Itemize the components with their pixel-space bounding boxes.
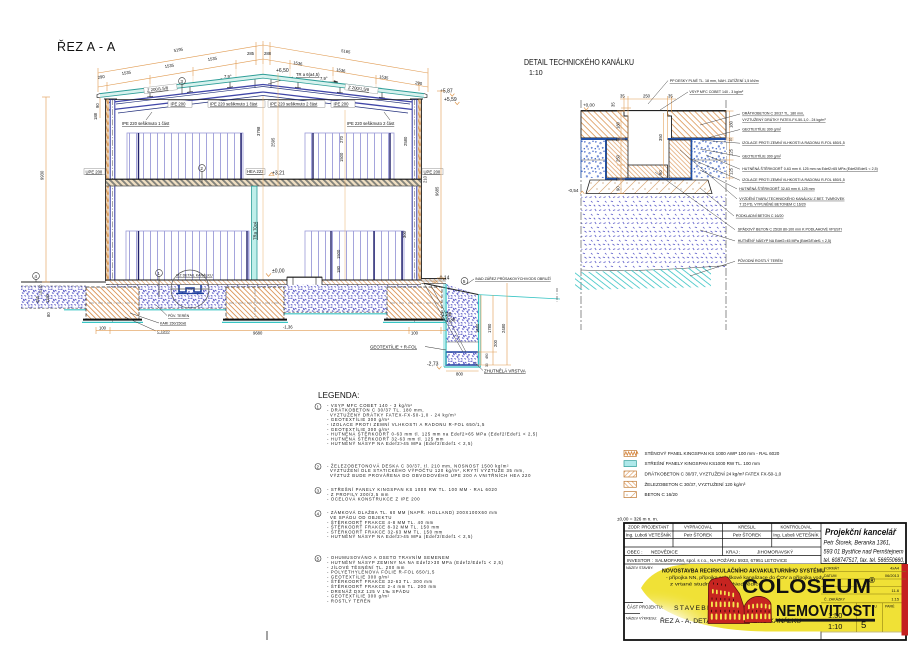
svg-text:STĚNOVÝ PANEL KINGSPAN KS 1000: STĚNOVÝ PANEL KINGSPAN KS 1000 AWP 100 m… bbox=[645, 449, 780, 456]
svg-text:HUTNĚNÁ ŠTĚRKODRŤ 32-63 mm tl.: HUTNĚNÁ ŠTĚRKODRŤ 32-63 mm tl. 125 mm bbox=[739, 186, 814, 191]
svg-text:90: 90 bbox=[95, 103, 100, 108]
svg-text:KRESLIL: KRESLIL bbox=[738, 525, 756, 530]
svg-text:ZHUTNĚLÁ VRSTVA: ZHUTNĚLÁ VRSTVA bbox=[484, 369, 526, 374]
svg-text:TRa 70x4: TRa 70x4 bbox=[253, 221, 258, 240]
svg-text:PŮV. TERÉN: PŮV. TERÉN bbox=[168, 313, 190, 318]
svg-text:INVESTOR :: INVESTOR : bbox=[627, 558, 653, 563]
svg-text:4: 4 bbox=[34, 274, 37, 279]
svg-text:188: 188 bbox=[93, 112, 98, 120]
svg-text:2595: 2595 bbox=[271, 137, 276, 147]
svg-text:Petr Štorek, Beranka 1361,: Petr Štorek, Beranka 1361, bbox=[824, 540, 891, 547]
svg-text:2580: 2580 bbox=[403, 136, 408, 146]
svg-text:IPE 200: IPE 200 bbox=[171, 102, 187, 107]
svg-text:10: 10 bbox=[616, 138, 620, 142]
svg-text:KRAJ :: KRAJ : bbox=[726, 549, 740, 554]
svg-text:VYZDĚNÍ TVARU TECHNICKÉHO KANÁ: VYZDĚNÍ TVARU TECHNICKÉHO KANÁLKU Z BET.… bbox=[739, 196, 845, 201]
svg-text:90: 90 bbox=[658, 170, 663, 175]
svg-text:NOVOSTAVBA RECIRKULAČNÍHO AKVA: NOVOSTAVBA RECIRKULAČNÍHO AKVAKULTURNÍHO… bbox=[662, 567, 825, 575]
svg-text:300: 300 bbox=[402, 230, 407, 238]
svg-text:3798: 3798 bbox=[256, 126, 261, 136]
svg-text:250: 250 bbox=[616, 154, 621, 162]
svg-text:100: 100 bbox=[99, 325, 107, 330]
svg-text:9680: 9680 bbox=[253, 331, 263, 336]
svg-text:180: 180 bbox=[336, 265, 341, 273]
svg-text:593 01 Bystřice nad Pernštejne: 593 01 Bystřice nad Pernštejnem bbox=[824, 549, 904, 556]
svg-text:FORMÁT: FORMÁT bbox=[824, 567, 840, 571]
svg-text:PP DESKY PLNÉ TL. 18 mm, NAH.: PP DESKY PLNÉ TL. 18 mm, NAH. ZATÍŽENÍ 1… bbox=[670, 78, 759, 83]
svg-text:HUTNĚNÁ ŠTĚRKODRŤ 0-63 mm tl.: HUTNĚNÁ ŠTĚRKODRŤ 0-63 mm tl. 125 mm na … bbox=[742, 166, 878, 171]
svg-text:- OCELOVÁ KONSTRUKCE Z IPE 200: - OCELOVÁ KONSTRUKCE Z IPE 200 bbox=[327, 497, 420, 502]
svg-text:35: 35 bbox=[668, 94, 673, 99]
svg-text:HUTNĚNÝ NÁSYP NA Edef2>45 MPa: HUTNĚNÝ NÁSYP NA Edef2>45 MPa (Edef2/Ede… bbox=[738, 238, 831, 243]
svg-text:ŽELEZOBETON C 30/37, VYZTUŽENÍ: ŽELEZOBETON C 30/37, VYZTUŽENÍ 120 kg/m³ bbox=[645, 480, 746, 487]
svg-text:30: 30 bbox=[485, 363, 489, 367]
svg-text:11-6: 11-6 bbox=[892, 588, 900, 593]
svg-text:OBEC :: OBEC : bbox=[627, 549, 643, 554]
svg-text:VYPRACOVAL: VYPRACOVAL bbox=[684, 525, 713, 530]
svg-text:VSYP MFC COBET 140 - 3 kg/m²: VSYP MFC COBET 140 - 3 kg/m² bbox=[689, 90, 744, 94]
svg-text:35: 35 bbox=[620, 94, 625, 99]
svg-text:IZOLACE PROTI ZEMNÍ VLHKOSTI A: IZOLACE PROTI ZEMNÍ VLHKOSTI A RADONU R-… bbox=[742, 178, 845, 182]
svg-text:PODKLADNÍ BETON C 16/20: PODKLADNÍ BETON C 16/20 bbox=[736, 214, 784, 218]
svg-text:Ing. Luboš VETEŠNÍK: Ing. Luboš VETEŠNÍK bbox=[626, 531, 672, 537]
svg-text:DETAIL TECHNICKÉHO KANÁLKU: DETAIL TECHNICKÉHO KANÁLKU bbox=[524, 58, 634, 67]
svg-text:HEA 222: HEA 222 bbox=[247, 169, 264, 174]
svg-text:90: 90 bbox=[616, 186, 621, 191]
svg-text:7,9°: 7,9° bbox=[320, 76, 328, 81]
svg-text:LEGENDA:: LEGENDA: bbox=[318, 391, 359, 400]
svg-text:T 15 PD, VYPLNĚNÉ BETONEM C 16: T 15 PD, VYPLNĚNÉ BETONEM C 16/20 bbox=[739, 202, 806, 207]
svg-text:GEOTEXTÍLIE + R-FOL: GEOTEXTÍLIE + R-FOL bbox=[370, 345, 418, 350]
svg-text:35: 35 bbox=[611, 102, 616, 107]
svg-text:/NAD ZÁŘEZ PRŮSAKOVÝCH/VODS OB: /NAD ZÁŘEZ PRŮSAKOVÝCH/VODS OBRUŽÍ bbox=[475, 276, 551, 281]
svg-text:NEMOVITOSTI: NEMOVITOSTI bbox=[776, 603, 875, 620]
svg-text:-0,54: -0,54 bbox=[568, 188, 579, 193]
svg-text:IZOLACE PROTI ZEMNÍ VLHKOSTI A: IZOLACE PROTI ZEMNÍ VLHKOSTI A RADONU R-… bbox=[742, 141, 845, 145]
svg-text:NÁZEV VÝKRESU:: NÁZEV VÝKRESU: bbox=[626, 617, 657, 621]
svg-text:IPE 220 sešikmuto 2 část: IPE 220 sešikmuto 2 část bbox=[347, 121, 395, 126]
svg-text:PARÉ: PARÉ bbox=[885, 604, 895, 609]
svg-text:±0,00 = 326 m n. m.: ±0,00 = 326 m n. m. bbox=[617, 517, 658, 522]
svg-text:9685: 9685 bbox=[435, 186, 440, 196]
svg-text:150 60: 150 60 bbox=[39, 285, 43, 295]
svg-text:STŘEŠNÍ PANELY KINGSPAN KS100: STŘEŠNÍ PANELY KINGSPAN KS1000 RW TL. 10… bbox=[645, 459, 761, 466]
svg-text:455: 455 bbox=[35, 295, 40, 303]
svg-text:1780: 1780 bbox=[487, 323, 492, 333]
svg-text:100: 100 bbox=[411, 331, 419, 336]
svg-text:SALMOFARM, spol. s r.o., NA PO: SALMOFARM, spol. s r.o., NA POŽÁRU 5933,… bbox=[655, 556, 787, 563]
svg-text:UPE 200: UPE 200 bbox=[424, 169, 441, 174]
svg-text:DRÁTKOBETON C 30/37 TL. 180 mm: DRÁTKOBETON C 30/37 TL. 180 mm, bbox=[742, 112, 804, 116]
svg-text:1:10: 1:10 bbox=[529, 70, 543, 77]
svg-text:NEDVĚDICE: NEDVĚDICE bbox=[651, 547, 678, 554]
svg-text:2480: 2480 bbox=[501, 323, 506, 333]
svg-text:3: 3 bbox=[180, 79, 183, 84]
svg-text:VÝZTUŽ BUDE PROVÁŘENA DO OBVOD: VÝZTUŽ BUDE PROVÁŘENA DO OBVODOVÉHO UPE … bbox=[330, 473, 531, 478]
svg-text:9930: 9930 bbox=[40, 170, 45, 180]
svg-text:350: 350 bbox=[658, 133, 663, 141]
svg-text:®: ® bbox=[869, 576, 875, 585]
svg-text:1180: 1180 bbox=[45, 293, 50, 303]
svg-text:IPE 220 sešikmuto 1 část: IPE 220 sešikmuto 1 část bbox=[122, 121, 170, 126]
svg-text:tel. 608747517, fax. tel. 5665: tel. 608747517, fax. tel. 566550660, bbox=[824, 557, 905, 564]
svg-text:Petr ŠTOREK: Petr ŠTOREK bbox=[684, 531, 713, 537]
svg-text:IPE 220 sešikmuto 1 část: IPE 220 sešikmuto 1 část bbox=[210, 102, 258, 107]
svg-text:PŮVODNÍ ROSTLÝ TERÉN: PŮVODNÍ ROSTLÝ TERÉN bbox=[738, 258, 783, 263]
svg-text:VYZTUŽENÝ DRÁTKY FATEX-FX-50-1: VYZTUŽENÝ DRÁTKY FATEX-FX-50-1,0 - 24 kg… bbox=[742, 117, 826, 122]
svg-text:JIHOMORAVSKÝ: JIHOMORAVSKÝ bbox=[757, 548, 793, 554]
svg-text:IPE 200: IPE 200 bbox=[334, 102, 350, 107]
svg-text:2: 2 bbox=[200, 166, 203, 171]
svg-text:-0,14: -0,14 bbox=[438, 275, 450, 281]
svg-text:490: 490 bbox=[485, 353, 489, 359]
svg-text:06/2013: 06/2013 bbox=[885, 573, 899, 578]
svg-text:5: 5 bbox=[861, 620, 866, 631]
svg-text:UPE 200: UPE 200 bbox=[86, 169, 103, 174]
svg-text:ZODP. PROJEKTANT: ZODP. PROJEKTANT bbox=[628, 525, 669, 530]
svg-text:800: 800 bbox=[456, 371, 464, 376]
svg-text:DRÁTKOBETON C 30/37, VYZTUŽENÍ: DRÁTKOBETON C 30/37, VYZTUŽENÍ 24 kg/m³ … bbox=[645, 470, 782, 477]
svg-text:4xA4: 4xA4 bbox=[890, 566, 900, 571]
svg-text:KARI 150/150x6: KARI 150/150x6 bbox=[160, 322, 186, 326]
svg-text:COLOSEUM: COLOSEUM bbox=[742, 575, 871, 598]
svg-text:VIZ DETAIL KANÁLKU: VIZ DETAIL KANÁLKU bbox=[176, 274, 213, 278]
svg-text:1:10: 1:10 bbox=[828, 622, 842, 631]
svg-text:1500: 1500 bbox=[336, 249, 341, 259]
svg-text:- HUTNĚNÝ NÁSYP NA Edef2>45 MP: - HUTNĚNÝ NÁSYP NA Edef2>45 MPa (Edef2/E… bbox=[327, 441, 473, 446]
svg-text:Projekční kancelář: Projekční kancelář bbox=[825, 527, 897, 538]
svg-text:- HUTNĚNÝ NÁSYP NA Edef2>45 MP: - HUTNĚNÝ NÁSYP NA Edef2>45 MPa (Edef2/E… bbox=[327, 534, 473, 539]
svg-text:10: 10 bbox=[729, 138, 733, 142]
svg-text:200: 200 bbox=[493, 339, 498, 347]
svg-text:288: 288 bbox=[264, 51, 272, 56]
svg-text:+5,87: +5,87 bbox=[440, 89, 453, 95]
svg-text:+0,00: +0,00 bbox=[583, 102, 595, 107]
svg-text:GEOTEXTÍLIE 300 g/m²: GEOTEXTÍLIE 300 g/m² bbox=[742, 154, 782, 158]
svg-text:- ROSTLÝ TERÉN: - ROSTLÝ TERÉN bbox=[327, 598, 371, 603]
svg-text:±0,00: ±0,00 bbox=[272, 269, 285, 275]
svg-text:ŘEZ A - A: ŘEZ A - A bbox=[57, 39, 116, 54]
svg-text:80: 80 bbox=[46, 312, 51, 317]
svg-text:210: 210 bbox=[423, 175, 428, 183]
svg-text:TR a 6(a4,5): TR a 6(a4,5) bbox=[296, 72, 320, 77]
svg-text:270: 270 bbox=[339, 135, 344, 143]
svg-text:125: 125 bbox=[729, 167, 734, 175]
svg-text:Petr ŠTOREK: Petr ŠTOREK bbox=[733, 531, 762, 537]
svg-text:BETON C 16/20: BETON C 16/20 bbox=[645, 492, 679, 497]
svg-text:180: 180 bbox=[616, 121, 621, 129]
svg-text:ČÁST PROJEKTU:: ČÁST PROJEKTU: bbox=[627, 605, 663, 610]
svg-text:285: 285 bbox=[247, 51, 255, 56]
svg-text:1580: 1580 bbox=[475, 323, 480, 333]
svg-text:Ing. Luboš VETEŠNÍK: Ing. Luboš VETEŠNÍK bbox=[773, 531, 819, 537]
svg-text:1:15: 1:15 bbox=[891, 597, 899, 602]
svg-text:180: 180 bbox=[729, 120, 734, 128]
svg-text:KONTROLOVAL: KONTROLOVAL bbox=[780, 525, 812, 530]
svg-text:5: 5 bbox=[463, 279, 466, 284]
svg-text:-1,36: -1,36 bbox=[444, 318, 456, 324]
svg-text:SPÁDOVÝ BETON C 25/30 80-100 m: SPÁDOVÝ BETON C 25/30 80-100 mm K PODLAH… bbox=[738, 227, 842, 232]
svg-text:250: 250 bbox=[643, 94, 651, 99]
svg-text:70: 70 bbox=[616, 177, 620, 181]
svg-text:1500: 1500 bbox=[339, 152, 344, 162]
svg-text:NÁZEV STAVBY:: NÁZEV STAVBY: bbox=[626, 566, 653, 570]
svg-text:IPE 220 sešikmuto 2 část: IPE 220 sešikmuto 2 část bbox=[270, 102, 318, 107]
svg-text:GEOTEXTÍLIE 300 g/m²: GEOTEXTÍLIE 300 g/m² bbox=[742, 127, 782, 131]
svg-text:C 16/20: C 16/20 bbox=[157, 330, 170, 334]
svg-text:-1,36: -1,36 bbox=[283, 325, 293, 330]
svg-text:1: 1 bbox=[157, 271, 160, 276]
